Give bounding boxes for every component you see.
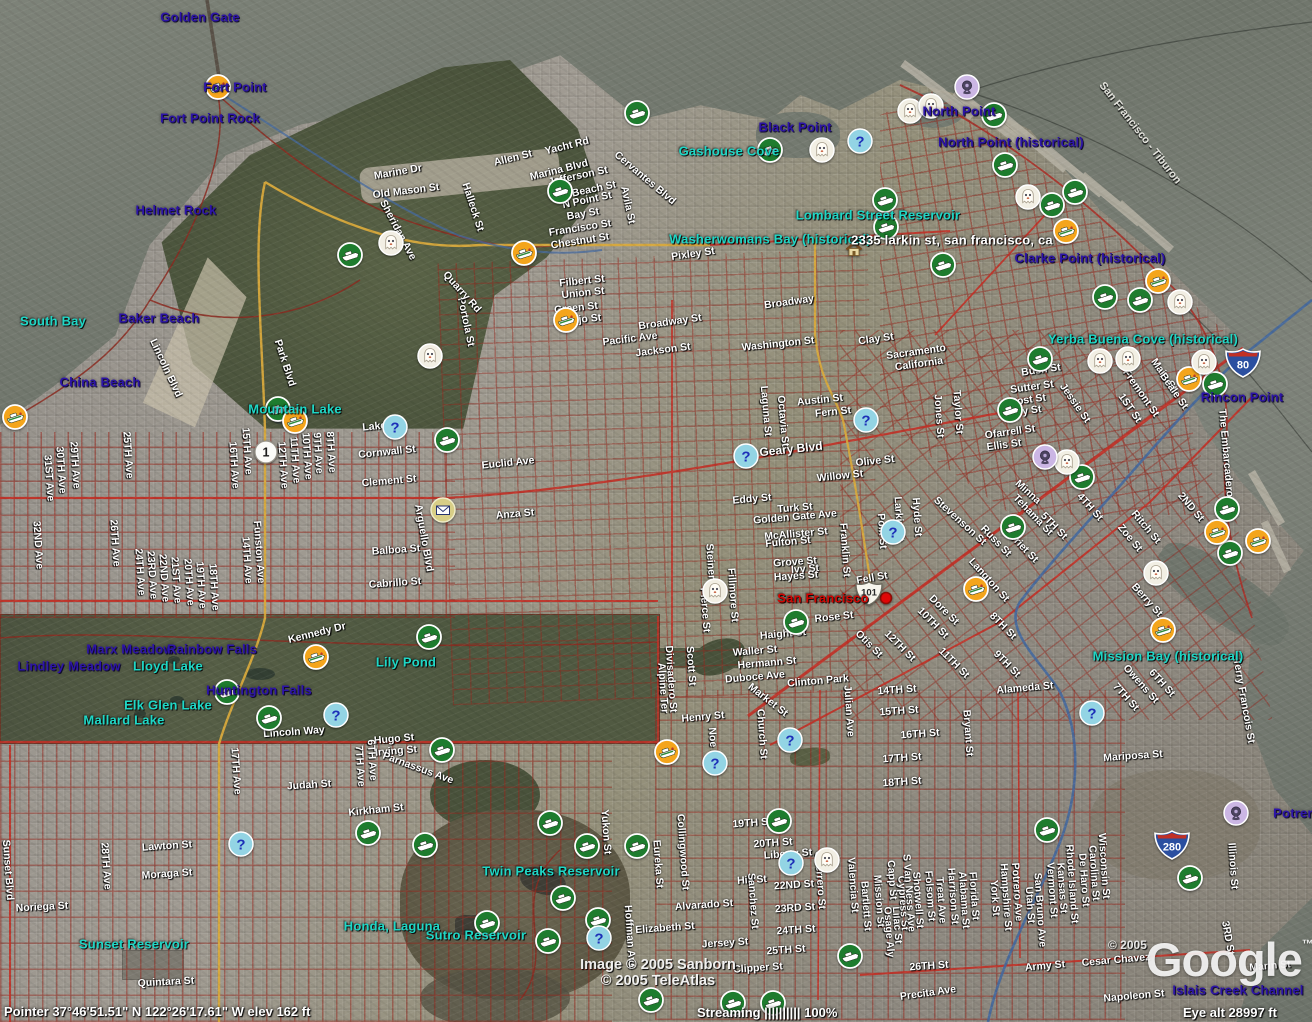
place-label[interactable]: Sunset Reservoir — [79, 937, 189, 952]
sanborn-copyright: Image © 2005 Sanborn — [580, 957, 736, 973]
place-label[interactable]: Fort Point Rock — [160, 111, 260, 126]
place-label[interactable]: Mission Bay (historical) — [1093, 649, 1244, 664]
place-label[interactable]: Sutro Reservoir — [426, 928, 527, 943]
place-label[interactable]: Lloyd Lake — [133, 659, 203, 674]
place-label[interactable]: Baker Beach — [119, 311, 200, 326]
place-label[interactable]: Lindley Meadow — [17, 659, 120, 674]
place-labels-layer: Golden GateFort PointFort Point RockHelm… — [0, 0, 1312, 1022]
place-label[interactable]: North Point (historical) — [938, 135, 1084, 150]
place-label[interactable]: Elk Glen Lake — [124, 698, 212, 713]
place-label[interactable]: Lily Pond — [376, 655, 436, 670]
place-label[interactable]: Huntington Falls — [206, 683, 312, 698]
google-logo: Google™ — [1146, 932, 1312, 987]
eye-altitude: Eye alt 28997 ft — [1183, 1005, 1277, 1020]
place-label[interactable]: South Bay — [20, 314, 86, 329]
place-label[interactable]: Twin Peaks Reservoir — [482, 864, 619, 879]
pointer-coordinates: Pointer 37°46'51.51" N 122°26'17.61" W e… — [4, 1004, 310, 1019]
streaming-status: Streaming |||||||||| 100% — [697, 1005, 837, 1020]
place-label[interactable]: Marx Meadow — [86, 642, 173, 657]
map-copyright: © 2005 — [1108, 938, 1147, 952]
place-label[interactable]: Rincon Point — [1201, 390, 1284, 405]
place-label[interactable]: Yerba Buena Cove (historical) — [1048, 332, 1238, 347]
place-label[interactable]: Lombard Street Reservoir — [796, 208, 960, 223]
google-logo-text: Google — [1146, 933, 1302, 986]
teleatlas-copyright: © 2005 TeleAtlas — [601, 973, 715, 989]
place-label[interactable]: Honda, Laguna — [344, 919, 441, 934]
place-label[interactable]: Clarke Point (historical) — [1015, 251, 1166, 266]
place-label[interactable]: Mountain Lake — [248, 402, 342, 417]
place-label[interactable]: Gashouse Cove — [679, 144, 780, 159]
place-label[interactable]: Potrero — [1273, 806, 1312, 821]
place-label[interactable]: Washerwomans Bay (historical) — [669, 232, 871, 247]
place-label[interactable]: Golden Gate — [160, 10, 240, 25]
place-label[interactable]: China Beach — [60, 375, 141, 390]
place-label[interactable]: Mallard Lake — [83, 713, 164, 728]
trademark-symbol: ™ — [1302, 937, 1312, 951]
place-label[interactable]: Black Point — [759, 120, 832, 135]
place-label[interactable]: Fort Point — [203, 80, 266, 95]
place-label[interactable]: North Point — [923, 104, 996, 119]
place-label[interactable]: Helmet Rock — [136, 203, 217, 218]
ferry-route-label: San Francisco - Tiburon — [1097, 80, 1184, 186]
place-label[interactable]: 2335 larkin st, san francisco, ca — [851, 233, 1053, 248]
place-label[interactable]: San Francisco — [777, 591, 868, 606]
place-label[interactable]: Rainbow Falls — [167, 642, 257, 657]
google-earth-map-view[interactable]: Marine DrOld Mason StAllen StYacht RdShe… — [0, 0, 1312, 1022]
